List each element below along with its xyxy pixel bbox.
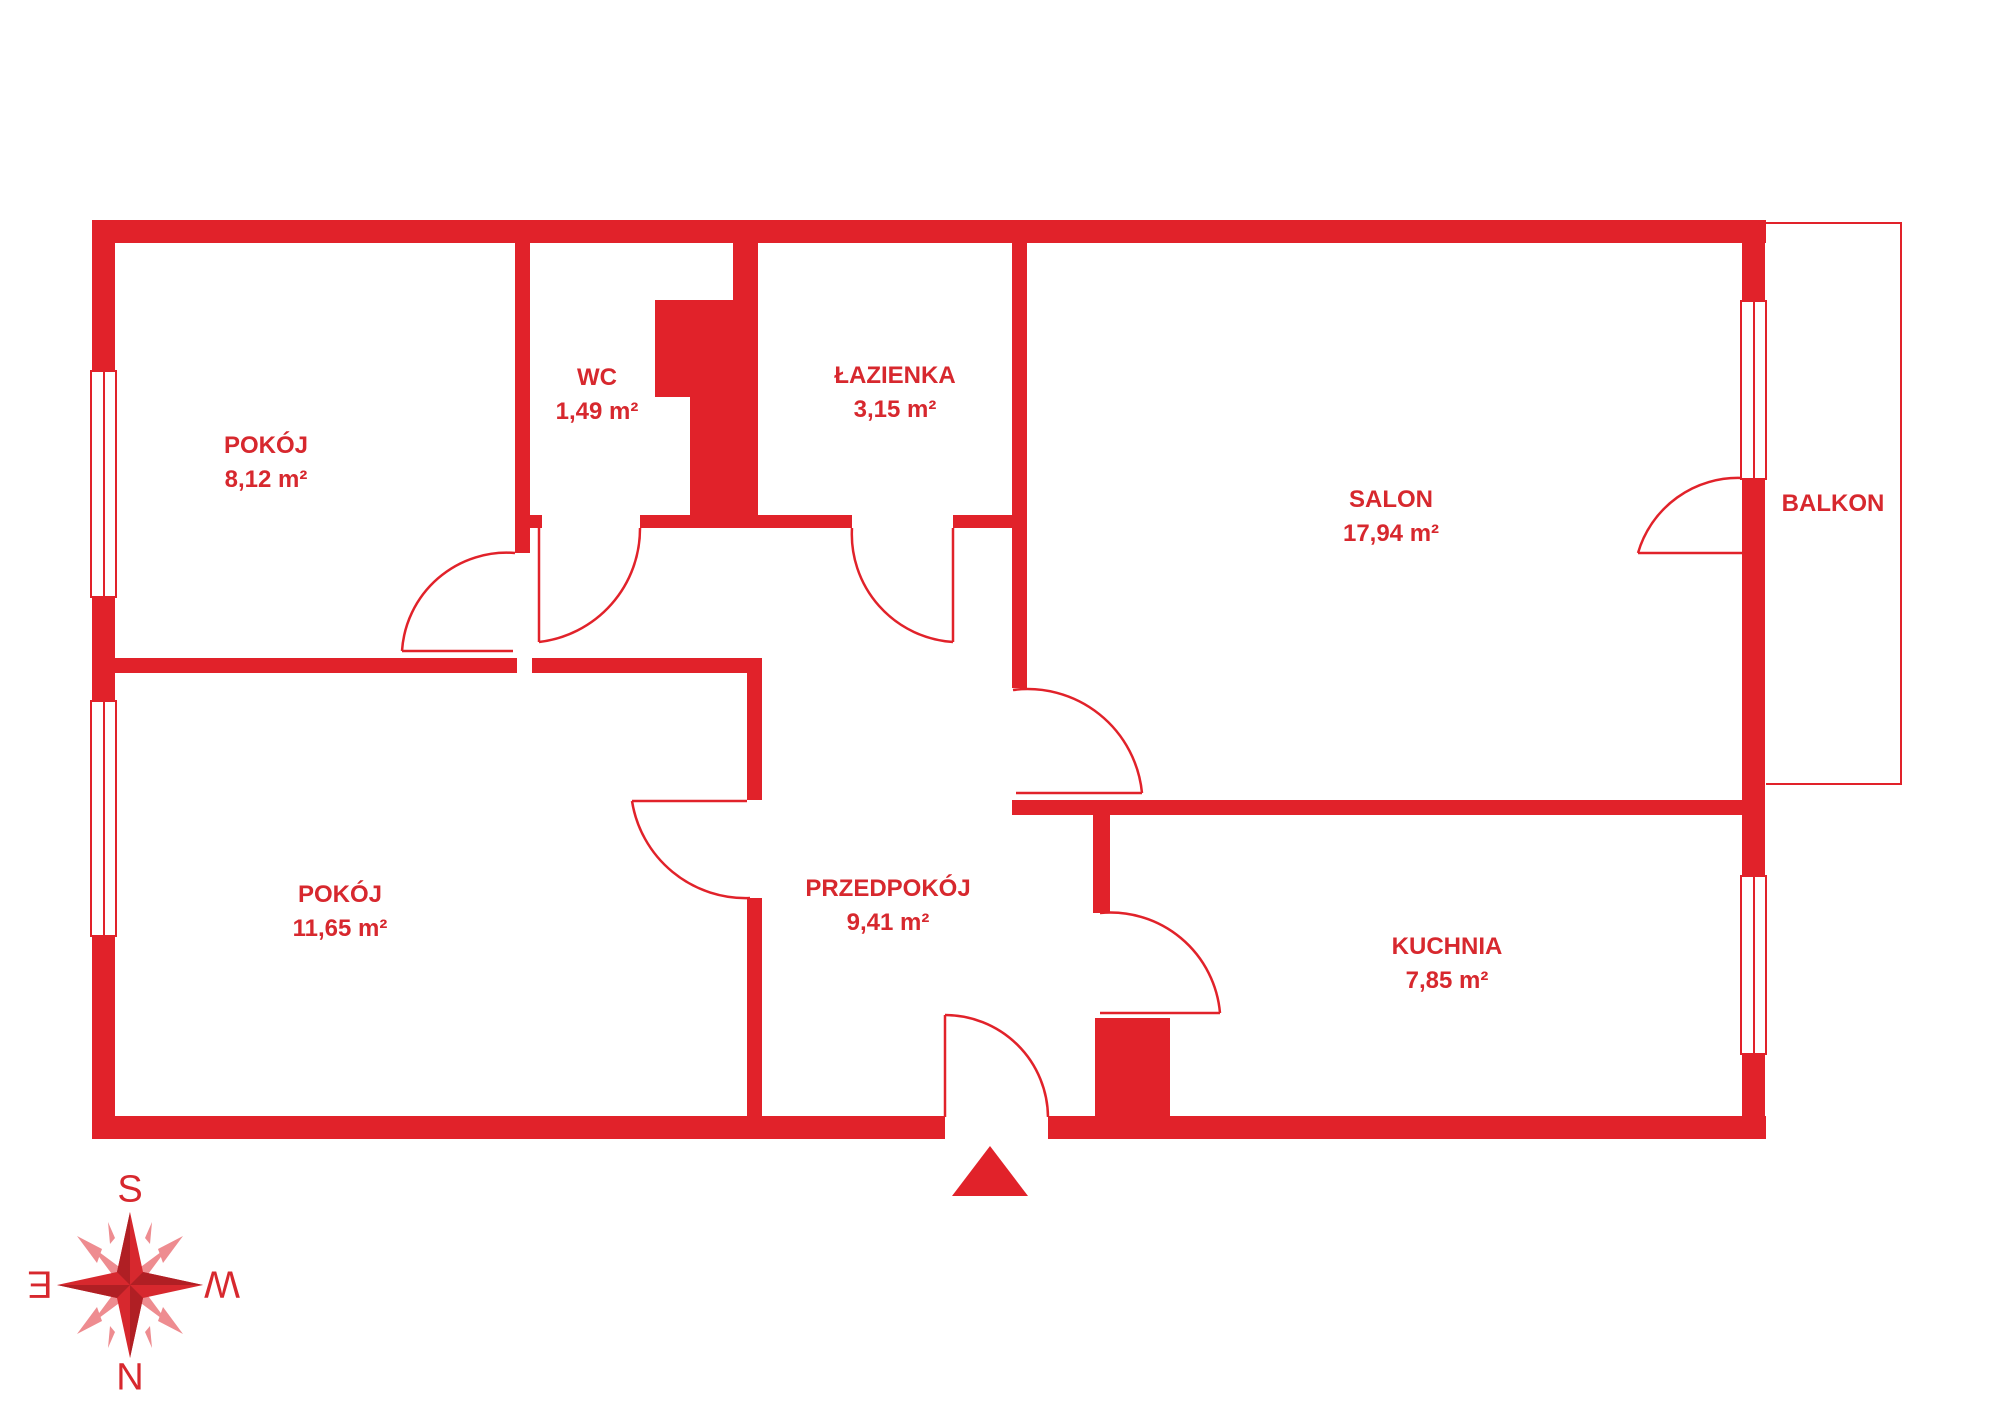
- door-pokoj-upper-arc-icon: [402, 553, 515, 651]
- room-area: 11,65 m²: [293, 912, 388, 946]
- room-label-przedpokoj: PRZEDPOKÓJ 9,41 m²: [805, 872, 970, 940]
- room-area: 8,12 m²: [224, 463, 308, 497]
- wall-pokoj-wc: [515, 243, 530, 553]
- door-kuchnia-arc-icon: [1100, 913, 1220, 1013]
- room-label-kuchnia: KUCHNIA 7,85 m²: [1392, 930, 1503, 998]
- room-name: WC: [556, 361, 639, 395]
- room-label-pokoj-lower: POKÓJ 11,65 m²: [293, 878, 388, 946]
- room-label-salon: SALON 17,94 m²: [1343, 483, 1439, 551]
- room-area: 7,85 m²: [1392, 964, 1503, 998]
- compass-cardinal-star-icon: [57, 1212, 203, 1358]
- wall-wc-jamb: [530, 515, 542, 528]
- outer-wall-bottom-left: [92, 1116, 945, 1139]
- wall-przedpokoj-kuchnia: [1093, 815, 1110, 913]
- room-name: SALON: [1343, 483, 1439, 517]
- door-salon-arc-icon: [1013, 689, 1142, 793]
- room-name: BALKON: [1782, 487, 1885, 521]
- compass-letter-east: E: [27, 1262, 52, 1305]
- door-pokoj-lower-arc-icon: [632, 801, 750, 898]
- wall-pokoj-przedpokoj-dn: [747, 898, 762, 1117]
- wall-pokoj-divider-right: [532, 658, 762, 673]
- wall-salon-kuchnia: [1012, 800, 1742, 815]
- room-name: POKÓJ: [224, 429, 308, 463]
- compass-letter-south: S: [117, 1169, 142, 1212]
- window-pane-icon: [103, 372, 105, 596]
- room-name: KUCHNIA: [1392, 930, 1503, 964]
- duct-wc-column: [690, 397, 735, 515]
- outer-wall-left: [92, 220, 115, 1139]
- entrance-arrow-icon: [952, 1146, 1028, 1196]
- room-area: 1,49 m²: [556, 395, 639, 429]
- window-pane-icon: [1753, 877, 1755, 1053]
- compass-rose-icon: [0, 0, 2000, 1416]
- outer-wall-top: [92, 220, 1766, 243]
- room-area: 17,94 m²: [1343, 517, 1439, 551]
- duct-wc-block: [655, 300, 735, 397]
- door-lazienka-arc-icon: [852, 528, 953, 642]
- window-kuchnia-icon: [1740, 875, 1767, 1055]
- room-label-lazienka: ŁAZIENKA 3,15 m²: [834, 359, 955, 427]
- wall-lazienka-bottom: [953, 515, 1012, 528]
- window-pokoj-upper-icon: [90, 370, 117, 598]
- floor-plan: S W N E POKÓJ 8,12 m² WC 1,49 m² ŁAZIENK…: [0, 0, 2000, 1416]
- wall-wc-lazienka: [733, 243, 758, 515]
- room-name: POKÓJ: [293, 878, 388, 912]
- room-area: 3,15 m²: [834, 393, 955, 427]
- door-wc-arc-icon: [539, 528, 640, 642]
- door-entrance-arc-icon: [945, 1015, 1048, 1117]
- wall-pokoj-divider-left: [115, 658, 517, 673]
- window-pane-icon: [1753, 302, 1755, 478]
- room-area: 9,41 m²: [805, 906, 970, 940]
- duct-entrance: [1095, 1018, 1170, 1117]
- wall-lazienka-salon: [1012, 243, 1027, 688]
- door-balkon-arc-icon: [1638, 478, 1742, 553]
- room-name: ŁAZIENKA: [834, 359, 955, 393]
- window-pane-icon: [103, 702, 105, 935]
- outer-wall-bottom-right: [1048, 1116, 1766, 1139]
- wall-wc-bottom: [640, 515, 852, 528]
- wall-pokoj-przedpokoj-up: [747, 658, 762, 800]
- window-salon-icon: [1740, 300, 1767, 480]
- door-arcs-layer: [0, 0, 2000, 1416]
- room-label-pokoj-upper: POKÓJ 8,12 m²: [224, 429, 308, 497]
- compass-diagonal-star-icon: [91, 1246, 169, 1324]
- window-pokoj-lower-icon: [90, 700, 117, 937]
- room-label-balkon: BALKON: [1782, 487, 1885, 521]
- compass-letter-north: N: [116, 1357, 143, 1400]
- room-label-wc: WC 1,49 m²: [556, 361, 639, 429]
- compass-letter-west: W: [204, 1262, 240, 1305]
- room-name: PRZEDPOKÓJ: [805, 872, 970, 906]
